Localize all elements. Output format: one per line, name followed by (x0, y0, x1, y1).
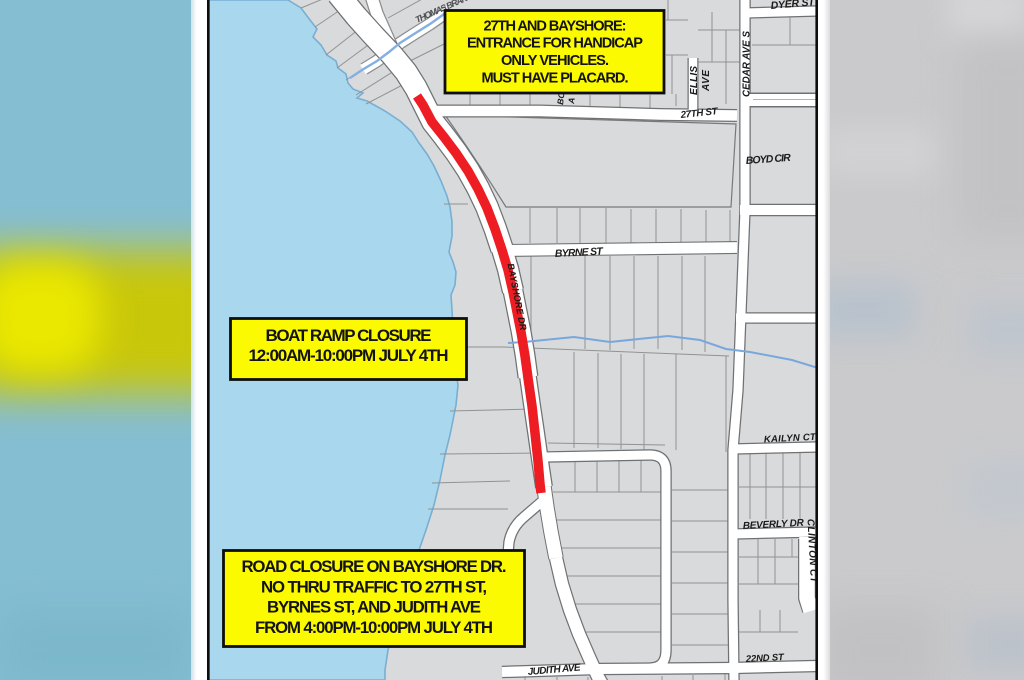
svg-text:ELLIS: ELLIS (689, 66, 700, 95)
svg-text:ENTRANCE FOR HANDICAP: ENTRANCE FOR HANDICAP (467, 36, 643, 52)
svg-text:FROM 4:00PM-10:00PM JULY 4TH: FROM 4:00PM-10:00PM JULY 4TH (255, 618, 493, 637)
svg-text:AVE: AVE (701, 70, 712, 92)
svg-text:22ND ST: 22ND ST (745, 652, 786, 665)
svg-text:NO THRU TRAFFIC TO 27TH ST,: NO THRU TRAFFIC TO 27TH ST, (261, 578, 487, 597)
svg-text:CEDAR AVE S: CEDAR AVE S (742, 31, 753, 97)
svg-text:A: A (566, 97, 577, 105)
svg-text:ONLY VEHICLES.: ONLY VEHICLES. (501, 53, 609, 69)
svg-text:27TH AND BAYSHORE:: 27TH AND BAYSHORE: (484, 19, 627, 35)
svg-text:ROAD CLOSURE ON BAYSHORE DR.: ROAD CLOSURE ON BAYSHORE DR. (242, 557, 507, 576)
svg-text:BOAT RAMP CLOSURE: BOAT RAMP CLOSURE (266, 326, 432, 345)
svg-text:12:00AM-10:00PM JULY 4TH: 12:00AM-10:00PM JULY 4TH (249, 346, 449, 365)
svg-text:BYRNES ST, AND JUDITH AVE: BYRNES ST, AND JUDITH AVE (267, 598, 481, 617)
svg-text:MUST HAVE PLACARD.: MUST HAVE PLACARD. (482, 71, 629, 87)
